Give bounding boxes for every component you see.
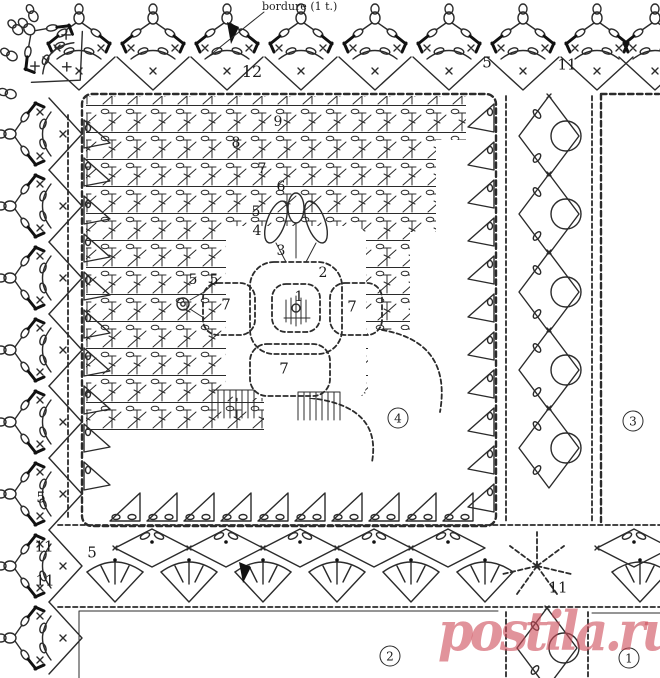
stitch-count-label: 3 bbox=[277, 244, 286, 258]
joining-strip-right bbox=[506, 94, 592, 522]
stitch-count-label: 2 bbox=[319, 266, 328, 280]
chart-arc bbox=[382, 330, 442, 412]
crochet-diagram: bordure (1 t.) 1298765432155777511511511… bbox=[0, 0, 660, 678]
stitch-count-label: 5 bbox=[87, 546, 97, 561]
stitch-count-label: 7 bbox=[279, 362, 289, 377]
motif-number-badge: 3 bbox=[623, 411, 644, 432]
diagram-linework bbox=[0, 0, 660, 678]
joining-band-bottom bbox=[58, 525, 660, 607]
stitch-count-label: 12 bbox=[242, 64, 262, 80]
stitch-count-label: 7 bbox=[258, 162, 267, 176]
stitch-count-label: 1 bbox=[295, 290, 304, 304]
motif-4 bbox=[68, 94, 496, 526]
stitch-count-label: 7 bbox=[347, 300, 357, 315]
stitch-count-label: 11 bbox=[557, 58, 576, 73]
stitch-count-label: 11 bbox=[34, 540, 53, 555]
stitch-count-label: 4 bbox=[253, 224, 262, 238]
motif-number-badge: 4 bbox=[388, 408, 409, 429]
sawtooth-right-column bbox=[468, 104, 494, 512]
motif-2 bbox=[79, 611, 498, 678]
stitch-count-label: 5 bbox=[482, 56, 492, 71]
top-border-edging bbox=[43, 4, 660, 90]
chart-arc bbox=[310, 398, 373, 462]
stitch-count-label: 5 bbox=[210, 273, 219, 287]
stitch-count-label: 5 bbox=[252, 205, 261, 219]
stitch-count-label: 9 bbox=[274, 115, 283, 129]
stitch-count-label: 7 bbox=[221, 298, 231, 313]
stitch-count-label: 5 bbox=[36, 491, 46, 506]
stitch-count-label: 11 bbox=[35, 574, 54, 589]
watermark: postila.ru bbox=[438, 599, 660, 663]
bordure-annotation: bordure (1 t.) bbox=[262, 0, 337, 13]
sawtooth-bottom-row bbox=[110, 493, 473, 521]
stitch-count-label: 6 bbox=[277, 180, 286, 194]
stitch-count-label: 5 bbox=[189, 273, 198, 287]
motif-3 bbox=[601, 94, 659, 522]
stitch-count-label: 8 bbox=[232, 136, 241, 150]
stitch-count-label: 11 bbox=[548, 581, 567, 596]
motif-number-badge: 2 bbox=[380, 646, 401, 667]
